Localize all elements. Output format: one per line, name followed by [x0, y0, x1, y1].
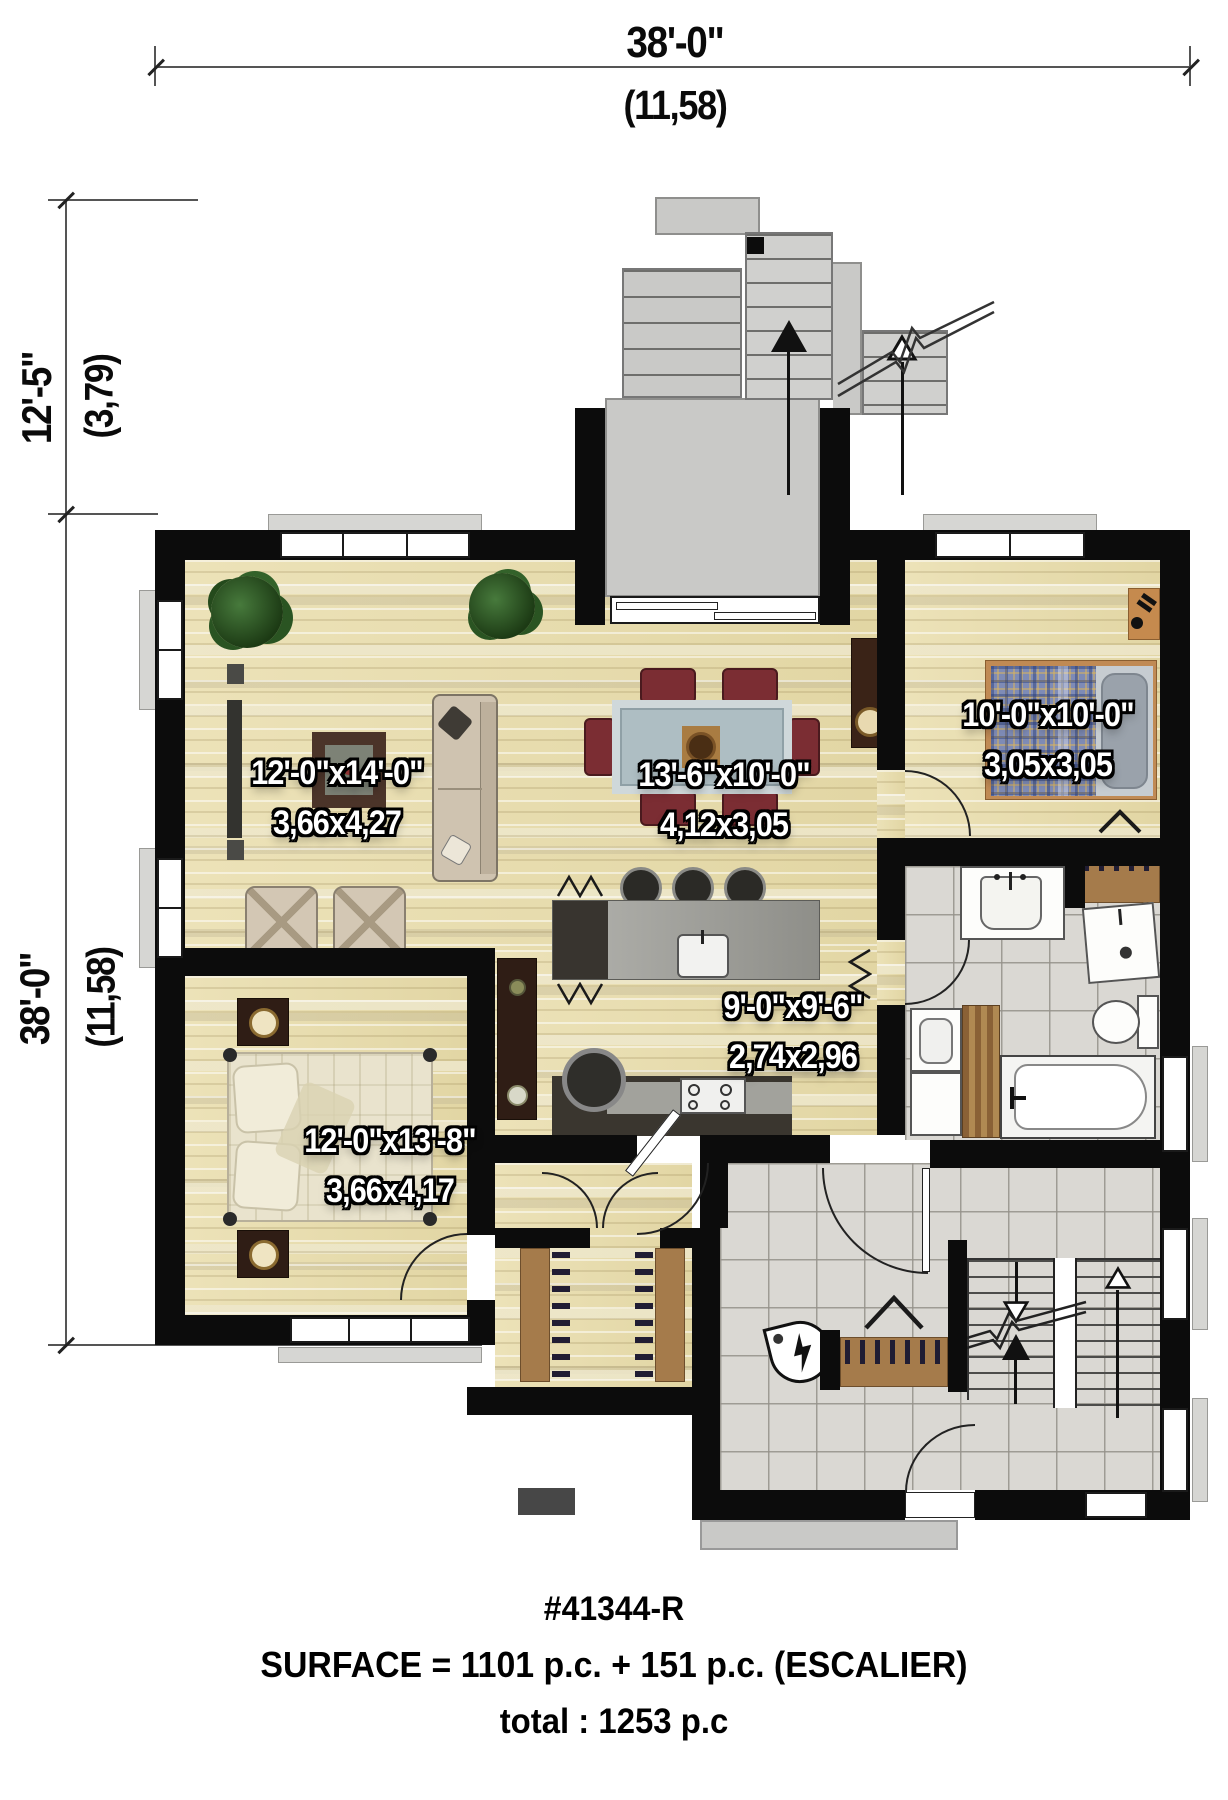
window-mullion: [348, 1317, 350, 1343]
sofa-pillow: [437, 705, 474, 742]
up-arrow-solid-icon: [771, 320, 807, 352]
closet-panel: [520, 1248, 550, 1382]
faucet-icon: [1009, 872, 1012, 890]
faucet-handle: [994, 874, 1000, 880]
sofa-back: [480, 702, 496, 874]
patio-door-panel: [616, 602, 718, 610]
closet-rod-hangers: [845, 1340, 943, 1364]
deck-post: [747, 237, 764, 254]
entry-door-leaf: [905, 1492, 975, 1518]
total-text: total : 1253 p.c: [37, 1702, 1191, 1742]
linen-shelves: [962, 1005, 1000, 1138]
wall: [185, 948, 495, 976]
closet-rod-hangers: [635, 1252, 653, 1380]
patio-door: [610, 596, 820, 624]
pedestal-sink: [1082, 902, 1160, 984]
wall: [495, 1228, 590, 1248]
wall: [1160, 530, 1190, 1520]
floor-threshold: [877, 770, 905, 838]
nightstand: [237, 998, 289, 1046]
closet-rod-hangers: [552, 1252, 570, 1380]
bed-post: [223, 1212, 237, 1226]
toilet-bowl: [1092, 1000, 1140, 1044]
window-sill: [1192, 1046, 1208, 1162]
lamp: [249, 1240, 279, 1270]
wall: [467, 1387, 720, 1415]
window-sill: [1192, 1218, 1208, 1330]
burner: [720, 1084, 732, 1096]
dining-chair: [722, 668, 778, 704]
sink-drain: [1119, 946, 1132, 959]
window-mullion: [342, 532, 344, 558]
room-size-imperial: 12'-0"x13'-8": [255, 1116, 525, 1166]
window-sill: [278, 1347, 482, 1363]
dim-top-imperial: 38'-0": [411, 18, 939, 68]
wall: [877, 838, 1160, 866]
wall: [975, 1490, 1190, 1520]
wall: [660, 1228, 720, 1248]
island-cabinet: [553, 901, 608, 979]
wall: [948, 1240, 967, 1392]
burner: [720, 1100, 730, 1110]
window-mullion: [157, 907, 183, 909]
window: [1162, 1056, 1188, 1152]
wall: [877, 866, 905, 940]
room-size-metric: 4,12x3,05: [589, 800, 859, 850]
wall: [1065, 838, 1085, 908]
dim-left-upper-metric: (3,79): [78, 265, 123, 529]
room-size-imperial: 9'-0"x9'-6": [658, 982, 928, 1032]
room-size-imperial: 10'-0"x10'-0": [913, 690, 1183, 740]
potted-plant: [211, 576, 283, 648]
window-mullion: [1009, 532, 1011, 558]
room-label-dining: 13'-6"x10'-0" 4,12x3,05: [589, 750, 859, 850]
room-label-bedroom: 10'-0"x10'-0" 3,05x3,05: [913, 690, 1183, 790]
dim-line-left: [65, 200, 67, 1345]
up-arrow-stem: [1014, 1360, 1017, 1404]
dim-left-upper-imperial: 12'-5": [13, 266, 61, 530]
desk: [1128, 588, 1160, 640]
dim-left-lower-imperial: 38'-0": [11, 867, 59, 1131]
surface-text: SURFACE = 1101 p.c. + 151 p.c. (ESCALIER…: [37, 1644, 1191, 1686]
deck-railing: [622, 268, 742, 398]
nightstand: [237, 1230, 289, 1278]
stove: [680, 1078, 746, 1114]
window-mullion: [410, 1317, 412, 1343]
window: [290, 1317, 470, 1343]
armoire-decor: [507, 1085, 528, 1106]
patio-door-panel: [714, 612, 816, 620]
up-arrow-stem: [1116, 1290, 1119, 1418]
bifold-door-icon: [556, 874, 604, 898]
desk-items: [1141, 593, 1157, 606]
window: [1162, 1408, 1188, 1492]
toilet: [1137, 995, 1159, 1049]
wall: [692, 1248, 720, 1387]
room-label-kitchen: 9'-0"x9'-6" 2,74x2,96: [658, 982, 928, 1082]
front-door-leaf: [922, 1168, 930, 1272]
window: [1162, 1228, 1188, 1320]
closet-panel: [655, 1248, 685, 1382]
door-swing: [637, 1163, 709, 1235]
room-label-master-bedroom: 12'-0"x13'-8" 3,66x4,17: [255, 1116, 525, 1216]
wall: [820, 1330, 840, 1390]
speaker: [227, 664, 244, 684]
front-stoop: [700, 1520, 958, 1550]
desk-chair: [1131, 617, 1143, 629]
potted-plant: [469, 573, 535, 639]
room-size-metric: 3,66x4,17: [255, 1166, 525, 1216]
break-line-icon: [836, 300, 996, 400]
vanity: [960, 866, 1065, 940]
lamp: [249, 1008, 279, 1038]
burner: [688, 1084, 700, 1096]
plan-number: #41344-R: [37, 1590, 1191, 1629]
dim-left-lower-metric: (11,58): [80, 866, 125, 1130]
armoire: [497, 958, 537, 1120]
room-size-metric: 3,66x4,27: [202, 798, 472, 848]
room-size-metric: 3,05x3,05: [913, 740, 1183, 790]
down-arrow-stem: [1015, 1262, 1018, 1302]
window: [1085, 1492, 1147, 1518]
stair-landing-top: [655, 197, 760, 235]
kitchen-island: [552, 900, 820, 980]
tub-basin: [1014, 1064, 1147, 1130]
bifold-door-icon: [862, 1294, 926, 1330]
room-label-living: 12'-0"x14'-0" 3,66x4,27: [202, 748, 472, 848]
faucet-icon: [1118, 909, 1122, 925]
lightning-icon: [779, 1326, 825, 1379]
dining-chair: [640, 668, 696, 704]
prep-sink-bowl: [562, 1048, 626, 1112]
room-size-metric: 2,74x2,96: [658, 1032, 928, 1082]
up-arrow-open-icon: [1104, 1266, 1132, 1290]
wall: [692, 1490, 905, 1520]
room-size-imperial: 12'-0"x14'-0": [202, 748, 472, 798]
burner: [688, 1100, 698, 1110]
tub-faucet-icon: [1010, 1096, 1026, 1100]
window-mullion: [406, 532, 408, 558]
side-step: [518, 1488, 575, 1515]
up-arrow-stem: [787, 350, 790, 495]
bifold-door-icon: [1096, 808, 1144, 834]
armoire-decor: [509, 979, 526, 996]
wall: [930, 1140, 1160, 1168]
dim-ext: [48, 199, 198, 201]
room-size-imperial: 13'-6"x10'-0": [589, 750, 859, 800]
wall: [877, 560, 905, 770]
floor-plan-sheet: 38'-0" (11,58) 12'-5" (3,79) 38'-0" (11,…: [0, 0, 1228, 1800]
faucet-icon: [701, 930, 704, 944]
window-mullion: [157, 649, 183, 651]
wall: [575, 408, 605, 625]
island-sink: [677, 934, 729, 978]
window-sill: [1192, 1398, 1208, 1502]
bed-post: [423, 1048, 437, 1062]
bed-post: [223, 1048, 237, 1062]
bathtub: [1000, 1055, 1156, 1139]
bifold-door-icon: [556, 982, 604, 1006]
dim-top-metric: (11,58): [411, 82, 939, 129]
window: [280, 532, 470, 558]
wall: [820, 408, 850, 625]
